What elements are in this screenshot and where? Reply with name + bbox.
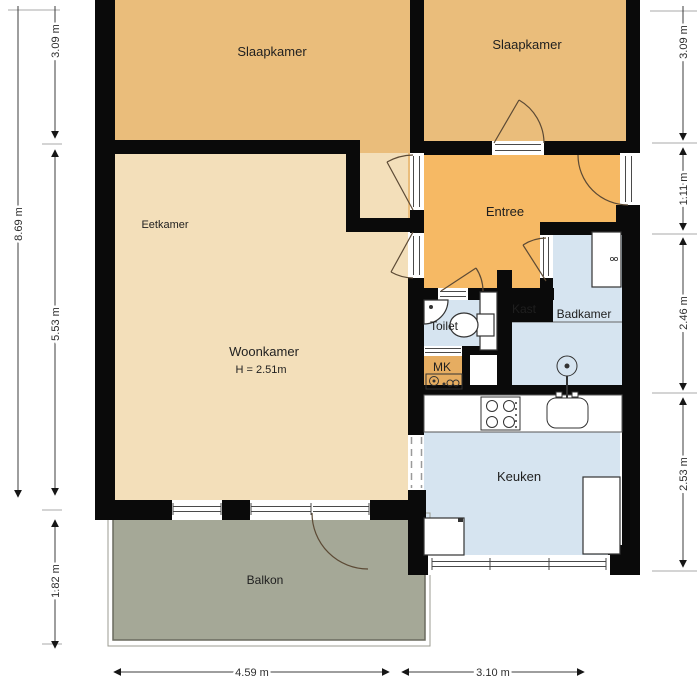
dim-right-bedroom: 3.09 m	[678, 25, 690, 59]
balkon-door-glazing	[312, 500, 370, 520]
doorjamb-eetkamer	[410, 233, 424, 278]
label-slaapkamer-right: Slaapkamer	[492, 37, 562, 52]
label-eetkamer: Eetkamer	[141, 219, 188, 231]
dim-right-bathroom: 2.46 m	[678, 296, 690, 330]
dim-right-entrance: 1.11 m	[678, 173, 690, 206]
wall-right-top	[626, 0, 640, 145]
fridge-icon	[424, 518, 464, 555]
label-balkon: Balkon	[247, 573, 284, 587]
room-woonkamer	[115, 153, 408, 501]
label-badkamer: Badkamer	[557, 307, 612, 321]
window-woonkamer-2	[250, 500, 312, 520]
dim-left-balcony: 1.82 m	[50, 564, 62, 598]
wall-balkon-kitchen	[408, 490, 426, 575]
window-keuken	[428, 555, 610, 575]
window-mk-interior	[424, 346, 462, 356]
dim-right-kitchen: 2.53 m	[678, 457, 690, 491]
dim-bottom-kitchen: 3.10 m	[476, 667, 510, 679]
label-woonkamer-height: H = 2.51m	[235, 364, 286, 376]
dim-left-overall: 8.69 m	[13, 207, 25, 241]
label-woonkamer: Woonkamer	[229, 344, 300, 359]
passage-woonkamer-keuken	[412, 437, 422, 488]
wall-right-lower	[622, 230, 640, 575]
label-kast: Kast	[512, 302, 537, 316]
wall-toilet-badkamer	[497, 270, 512, 392]
label-mk: MK	[433, 360, 451, 374]
wall-bedroom-divider	[410, 0, 424, 153]
wall-door-pier	[410, 210, 424, 233]
floor-plan-page: Slaapkamer Slaapkamer Eetkamer Woonkamer…	[0, 0, 700, 700]
doorjamb-badkamer	[540, 235, 553, 278]
dim-left-upper: 3.09 m	[50, 24, 62, 58]
label-toilet: Toilet	[430, 319, 459, 333]
room-slaapkamer-left	[115, 0, 410, 141]
wall-left	[95, 0, 115, 520]
kitchen-cabinet-icon	[583, 477, 620, 554]
label-entree: Entree	[486, 204, 524, 219]
dim-left-lower: 5.53 m	[50, 307, 62, 341]
room-slaapkamer-right	[424, 0, 626, 142]
floor-plan: Slaapkamer Slaapkamer Eetkamer Woonkamer…	[0, 0, 700, 700]
wall-entree-badkamer	[540, 222, 640, 235]
label-slaapkamer-left: Slaapkamer	[237, 44, 307, 59]
dim-bottom-living: 4.59 m	[235, 667, 269, 679]
kitchen-counter	[424, 395, 622, 432]
doorjamb-slaapkamerL	[410, 153, 424, 210]
doorjamb-slaapkamerR	[492, 141, 544, 155]
doorjamb-front-door	[620, 153, 640, 205]
window-woonkamer-1	[172, 500, 222, 520]
room-fills	[108, 0, 626, 646]
wall-living-kitchen	[408, 278, 424, 435]
wall-bedroomL-bottom	[95, 140, 360, 154]
label-keuken: Keuken	[497, 469, 541, 484]
washing-machine-icon	[592, 232, 621, 287]
